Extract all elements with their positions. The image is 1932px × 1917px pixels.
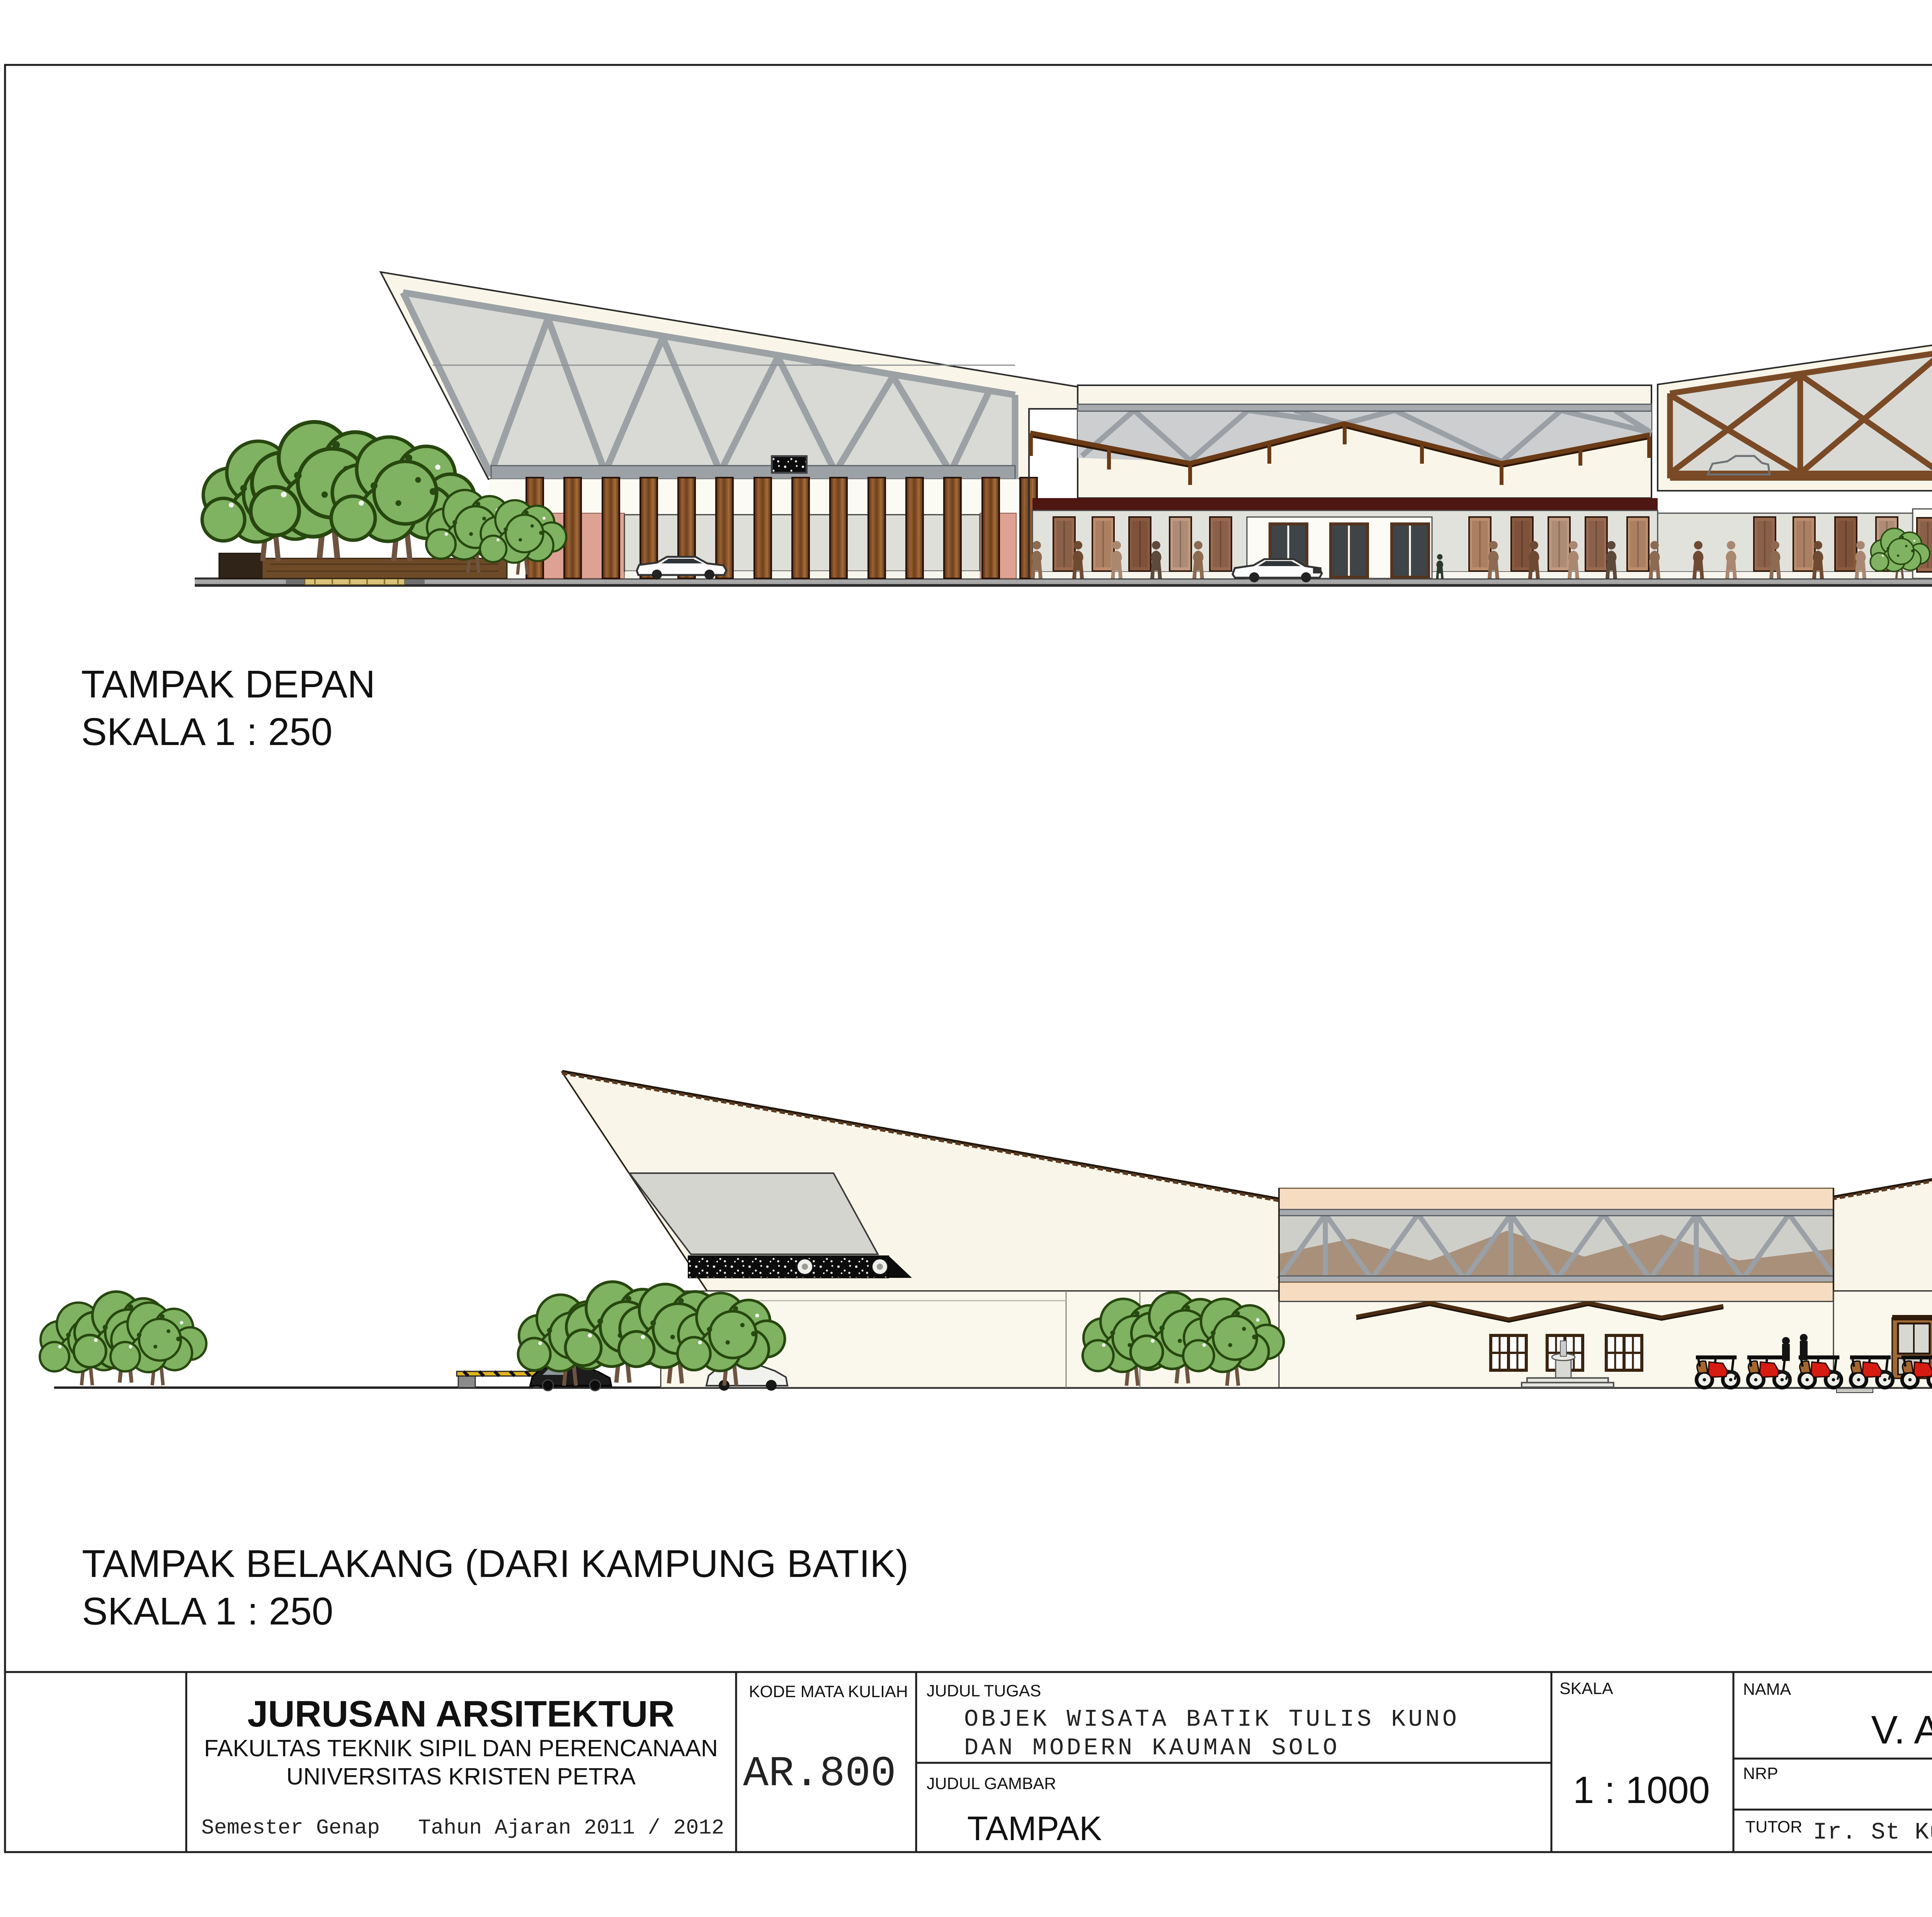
svg-text:1 : 1000: 1 : 1000 (1573, 1769, 1710, 1811)
svg-text:Ir. St Kuncoro Santoso, M.T: Ir. St Kuncoro Santoso, M.T (1813, 1819, 1932, 1846)
svg-text:TAMPAK BELAKANG (DARI KAMPUNG: TAMPAK BELAKANG (DARI KAMPUNG BATIK) (82, 1542, 908, 1585)
svg-text:SKALA: SKALA (1560, 1679, 1613, 1698)
svg-text:TAMPAK DEPAN: TAMPAK DEPAN (81, 663, 375, 706)
svg-text:JURUSAN ARSITEKTUR: JURUSAN ARSITEKTUR (247, 1693, 675, 1735)
svg-text:FAKULTAS TEKNIK SIPIL DAN PERE: FAKULTAS TEKNIK SIPIL DAN PERENCANAAN (204, 1735, 718, 1761)
svg-text:DAN MODERN KAUMAN SOLO: DAN MODERN KAUMAN SOLO (964, 1734, 1340, 1762)
svg-text:NAMA: NAMA (1743, 1680, 1791, 1699)
svg-text:SKALA 1 : 250: SKALA 1 : 250 (81, 710, 333, 754)
svg-text:JUDUL TUGAS: JUDUL TUGAS (927, 1682, 1041, 1700)
svg-text:AR.800: AR.800 (743, 1750, 896, 1798)
svg-text:KODE MATA KULIAH: KODE MATA KULIAH (749, 1682, 908, 1701)
svg-text:Semester Genap Tahun Ajaran: Semester Genap Tahun Ajaran 2011 / 2012 (201, 1816, 724, 1840)
svg-text:V. ANDREE T.: V. ANDREE T. (1871, 1708, 1932, 1752)
svg-text:OBJEK WISATA BATIK TULIS KUNO: OBJEK WISATA BATIK TULIS KUNO (964, 1706, 1459, 1733)
svg-text:TAMPAK: TAMPAK (967, 1809, 1102, 1847)
svg-text:NRP: NRP (1743, 1764, 1778, 1783)
svg-text:TUTOR: TUTOR (1745, 1818, 1802, 1836)
svg-text:UNIVERSITAS KRISTEN PETRA: UNIVERSITAS KRISTEN PETRA (286, 1763, 636, 1789)
svg-text:JUDUL GAMBAR: JUDUL GAMBAR (927, 1774, 1056, 1793)
svg-text:SKALA 1 : 250: SKALA 1 : 250 (82, 1590, 333, 1633)
